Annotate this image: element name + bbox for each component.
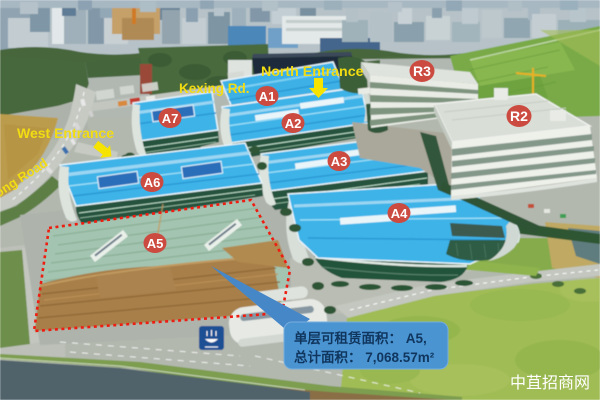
svg-text:West Entrance: West Entrance — [17, 125, 114, 141]
svg-text:A5: A5 — [147, 236, 164, 251]
svg-text:R3: R3 — [413, 63, 431, 79]
svg-text:总计面积： 7,068.57m²: 总计面积： 7,068.57m² — [294, 349, 435, 365]
svg-text:A3: A3 — [331, 154, 348, 169]
svg-text:Kexing Rd.: Kexing Rd. — [179, 81, 250, 96]
svg-text:单层可租赁面积： A5,: 单层可租赁面积： A5, — [294, 330, 427, 346]
svg-text:North Entrance: North Entrance — [261, 64, 364, 80]
svg-text:A6: A6 — [144, 175, 161, 190]
svg-text:中苴招商网: 中苴招商网 — [510, 374, 590, 392]
svg-text:A7: A7 — [162, 111, 179, 126]
svg-text:A1: A1 — [259, 89, 276, 104]
svg-text:R2: R2 — [510, 108, 528, 124]
svg-text:A4: A4 — [391, 206, 408, 221]
svg-text:A2: A2 — [285, 116, 302, 131]
